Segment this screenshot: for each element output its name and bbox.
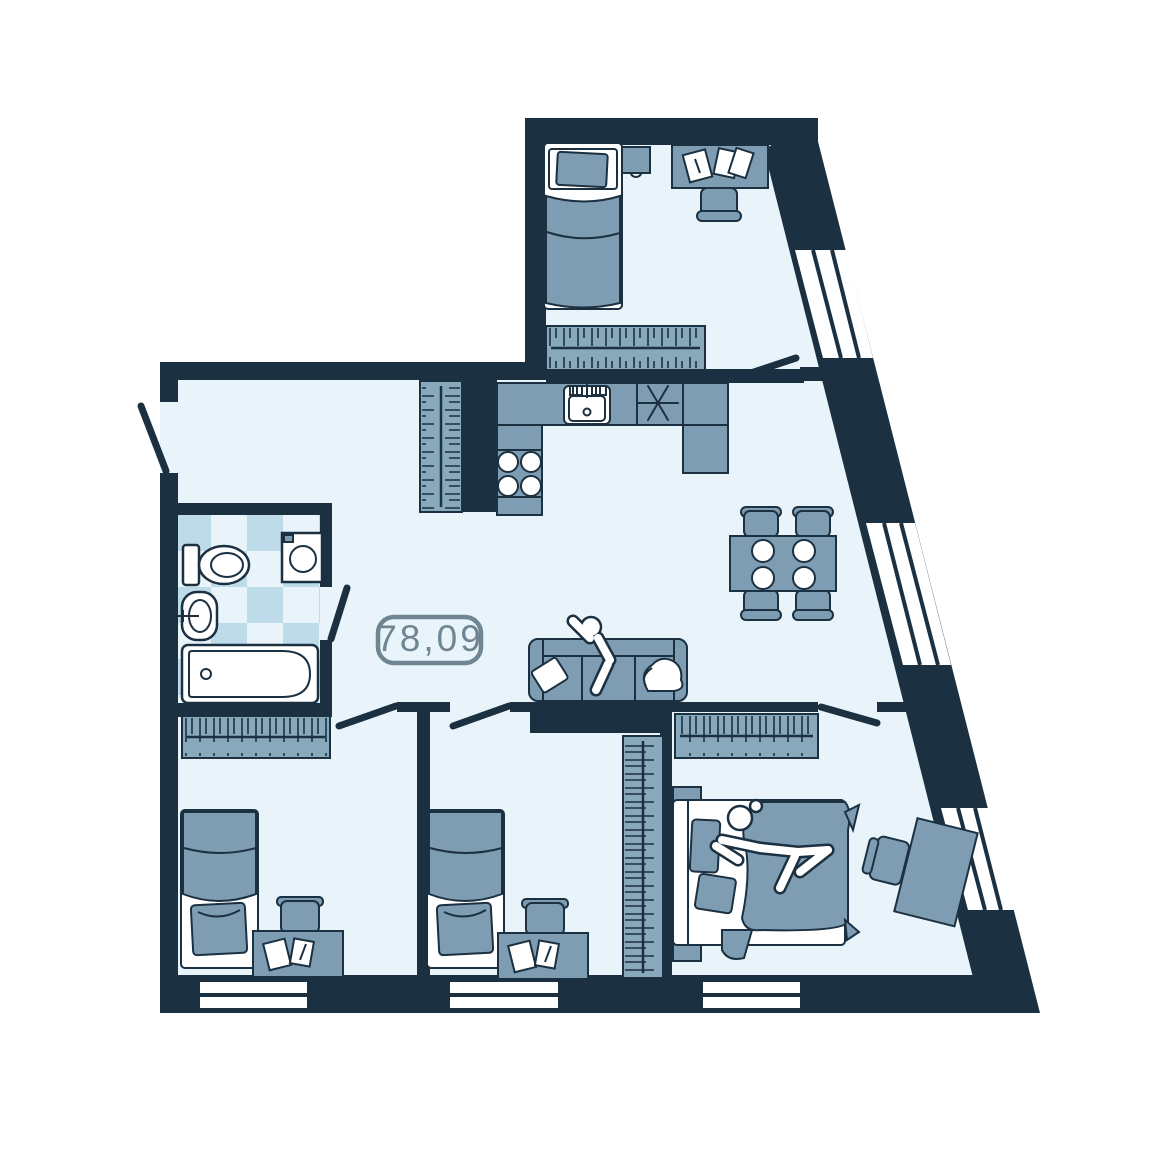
pillow [556, 152, 608, 188]
bathtub [182, 645, 318, 703]
wardrobe [182, 716, 330, 758]
toilet [183, 545, 249, 585]
washing-machine [282, 533, 322, 582]
nightstand [622, 147, 650, 173]
dining-chair [741, 507, 781, 537]
area-label: 78,09 [376, 617, 484, 663]
blanket [546, 196, 620, 308]
pillow [694, 873, 736, 913]
kitchen-counter [497, 383, 728, 425]
dining-chair [741, 590, 781, 620]
wardrobe [675, 714, 818, 758]
area-value: 78,09 [376, 618, 484, 659]
wardrobe [420, 381, 462, 512]
dining-chair [793, 590, 833, 620]
wardrobe [546, 326, 705, 370]
dining-table [730, 536, 836, 591]
kitchen-sink [564, 381, 610, 424]
floor-plan-page: 78,09 [0, 0, 1166, 1166]
double-bed [673, 800, 859, 959]
floor-plan-svg: 78,09 [0, 0, 1166, 1166]
dining-chair [793, 507, 833, 537]
wardrobe [623, 736, 663, 978]
room-entry-hall [420, 381, 462, 512]
